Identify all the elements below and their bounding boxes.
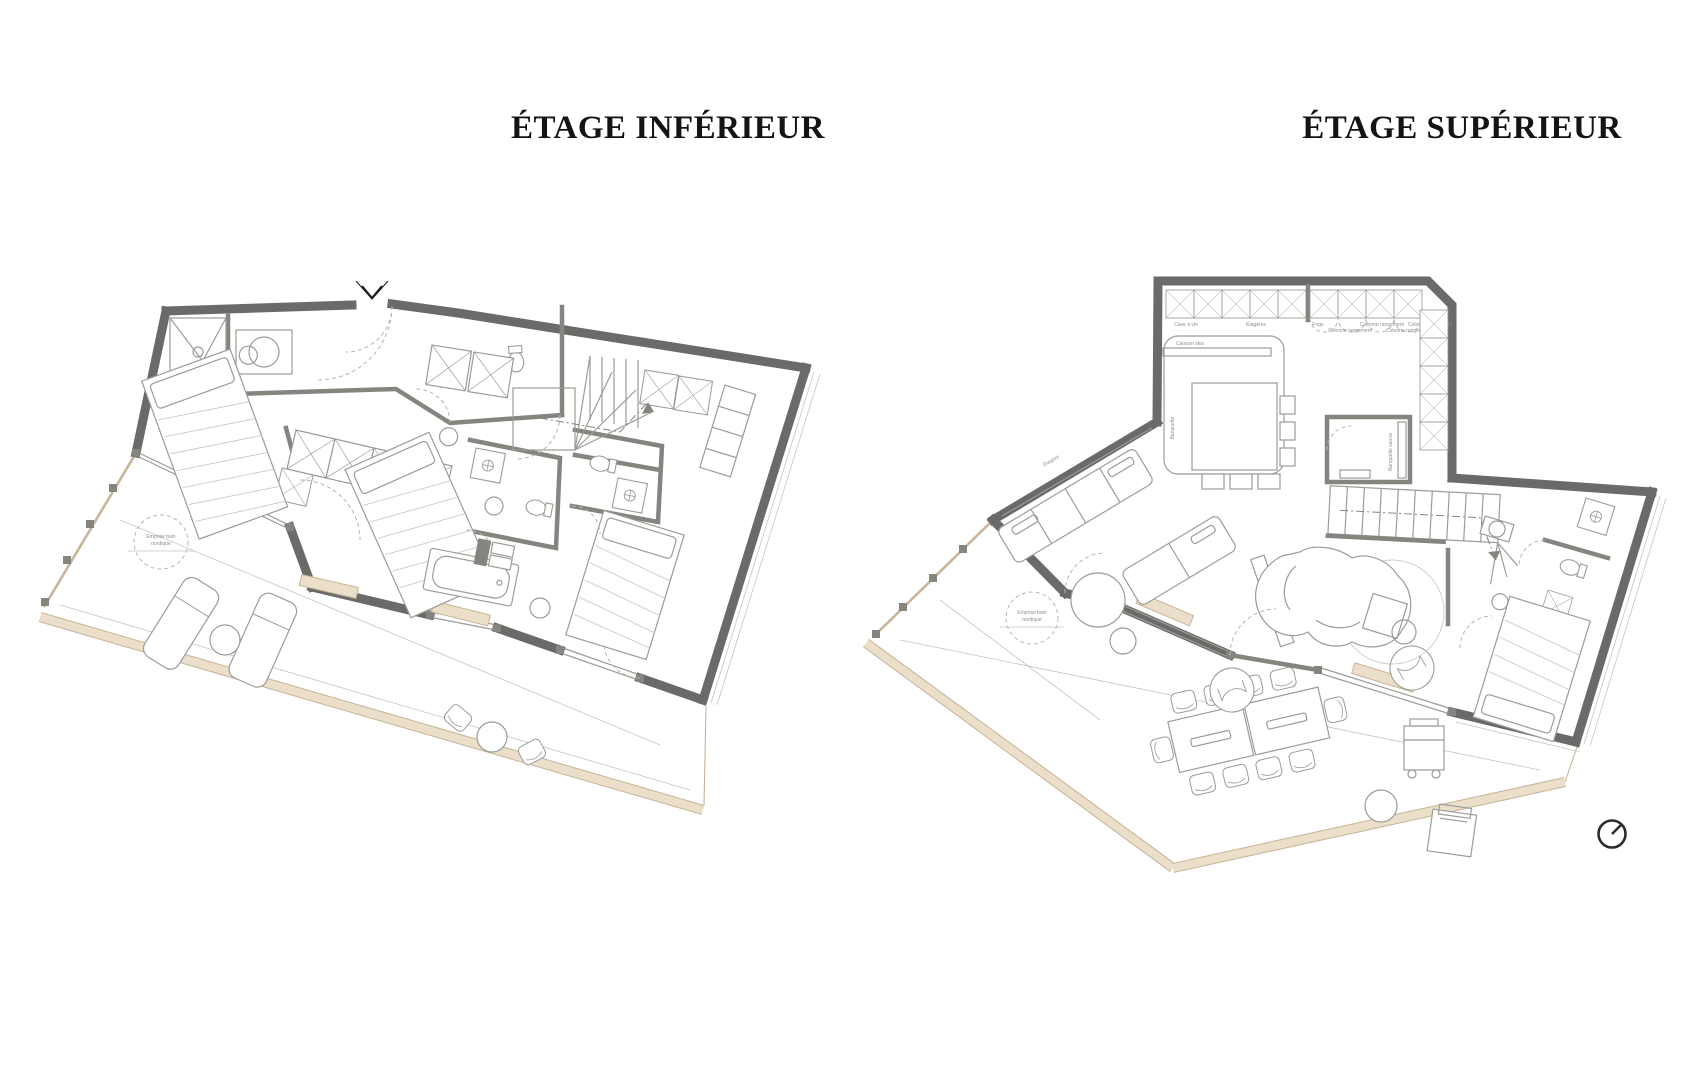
bed-double: [566, 511, 684, 660]
svg-text:Étagère: Étagère: [1042, 453, 1061, 468]
svg-text:Emprise bain: Emprise bain: [1017, 610, 1046, 616]
north-arrow-icon: [1599, 821, 1626, 848]
svg-text:Banquette: Banquette: [1170, 416, 1176, 439]
armchair: [1382, 638, 1442, 698]
toilet: [589, 454, 617, 474]
bed-double: [142, 341, 310, 539]
ski-box-shelf: Caisson skis: [1163, 341, 1271, 356]
bbq-cart: [1404, 719, 1444, 778]
floor-plan-lower: Emprise bain nordique: [39, 281, 820, 814]
svg-text:Emprise bain: Emprise bain: [146, 534, 175, 540]
svg-text:Étagères: Étagères: [1246, 321, 1267, 328]
floor-plan-upper: Emprise bain nordique: [863, 281, 1666, 872]
svg-text:Banquette sauna: Banquette sauna: [1388, 433, 1394, 471]
toilet: [525, 498, 553, 518]
svg-text:Cave à vin: Cave à vin: [1174, 322, 1198, 328]
svg-text:nordique: nordique: [151, 541, 171, 547]
outdoor-lounge-chair: [1427, 803, 1477, 857]
wardrobe-row-hall: [426, 345, 713, 415]
outdoor-chair: [442, 703, 473, 734]
nordic-bath-outline-lower: Emprise bain nordique: [128, 515, 194, 569]
toilet: [1558, 557, 1587, 579]
nordic-bath-outline-upper: Emprise bain nordique: [1000, 592, 1064, 644]
shower: [1577, 498, 1614, 535]
pouf: [1071, 573, 1125, 627]
svg-text:Frigo: Frigo: [1312, 322, 1324, 328]
staircase-lower: [513, 356, 654, 450]
side-table: [210, 625, 240, 655]
entry-arrow-icon: [356, 281, 388, 299]
svg-text:Colonne rangement: Colonne rangement: [1328, 328, 1373, 334]
outdoor-table: [477, 722, 507, 752]
entry-door-arc: [346, 306, 392, 352]
pouf: [1110, 628, 1136, 654]
outdoor-pouf: [1365, 790, 1397, 822]
floor-plans-canvas: Emprise bain nordique: [0, 0, 1698, 1080]
lounge-chair: [140, 574, 223, 673]
washbasin: [530, 598, 550, 618]
svg-text:Caisson skis: Caisson skis: [1176, 341, 1205, 347]
kitchen-island: Banquette: [1164, 336, 1295, 489]
sauna-room: Banquette sauna: [1327, 417, 1410, 482]
svg-text:nordique: nordique: [1022, 617, 1042, 623]
